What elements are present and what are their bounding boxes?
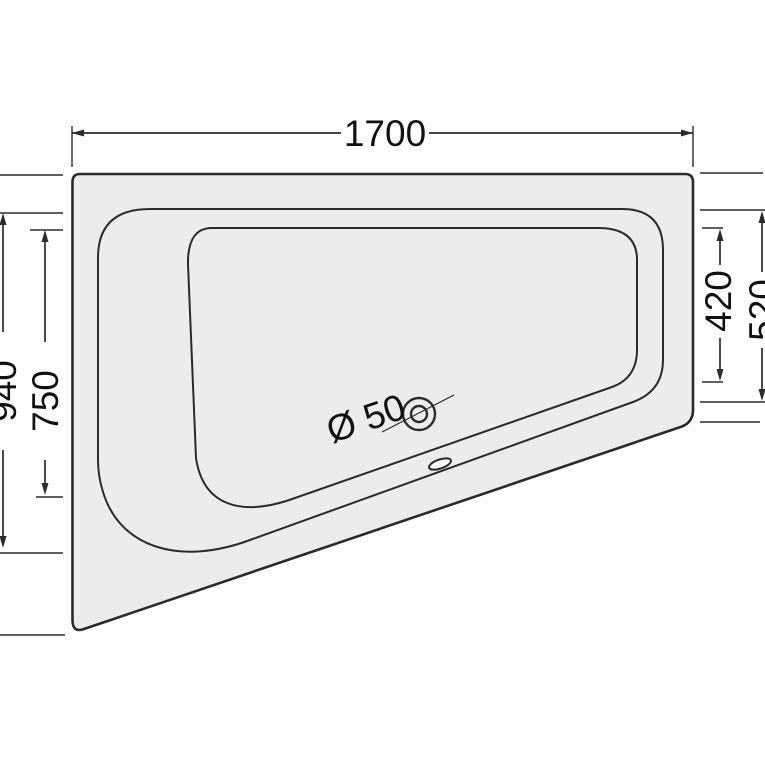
right-floor-depth-label: 420 [698,270,739,332]
arrowhead-right [681,130,693,137]
bathtub-dimension-diagram: Ø 50 1700 94 [0,0,765,765]
dimension-left-floor-depth: 750 [25,230,66,495]
dimension-right-group: 420 520 [698,173,765,422]
arrowhead-left [72,130,84,137]
left-rim-depth-label: 940 [0,360,24,422]
dimension-right-rim-depth: 520 [742,211,765,401]
dimension-left-group: 940 750 [0,175,66,635]
arrowhead-up [0,213,7,225]
arrowhead-up [717,229,724,241]
technical-drawing-canvas: Ø 50 1700 94 [0,0,765,765]
arrowhead-up [42,230,49,242]
arrowhead-down [717,369,724,381]
overall-width-label: 1700 [344,113,426,154]
dimension-right-floor-depth: 420 [698,229,739,381]
arrowhead-down [0,536,7,548]
arrowhead-up [759,211,765,223]
dimension-left-rim-depth: 940 [0,213,24,548]
tub-body: Ø 50 [73,174,694,630]
right-rim-depth-label: 520 [742,279,765,341]
left-floor-depth-label: 750 [25,370,66,432]
arrowhead-down [759,389,765,401]
arrowhead-down [42,483,49,495]
dimension-overall-width: 1700 [72,113,693,167]
